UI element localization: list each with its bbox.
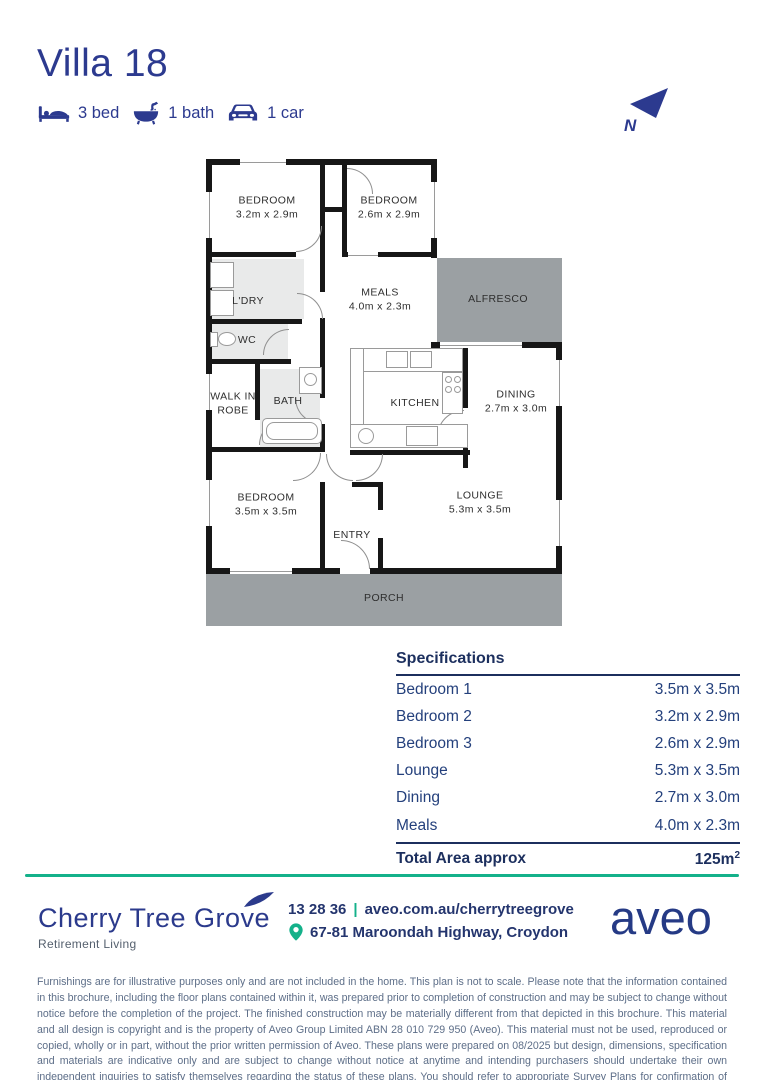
room-label-lounge: LOUNGE5.3m x 3.5m xyxy=(449,489,511,516)
contact-block: 13 28 36 | aveo.com.au/cherrytreegrove 6… xyxy=(288,901,574,942)
phone-number: 13 28 36 xyxy=(288,901,346,918)
community-logo: Cherry Tree Grove Retirement Living xyxy=(38,903,270,951)
specifications-heading: Specifications xyxy=(396,650,740,676)
room-label-bedroom-top-right: BEDROOM2.6m x 2.9m xyxy=(358,194,420,221)
sink-icon xyxy=(410,351,432,368)
car-count-label: 1 car xyxy=(267,104,304,123)
bed-icon xyxy=(38,102,70,124)
room-label-bath: BATH xyxy=(274,395,303,409)
room-label-walk-in-robe: WALK IN ROBE xyxy=(207,390,259,417)
bathtub-inner-icon xyxy=(266,422,318,440)
brochure-page: Villa 18 3 bed xyxy=(0,0,764,1080)
burner-icon xyxy=(454,386,461,393)
location-pin-icon xyxy=(288,922,304,942)
specifications-table: Specifications Bedroom 13.5m x 3.5m Bedr… xyxy=(396,650,740,869)
basin-icon xyxy=(304,373,317,386)
separator: | xyxy=(353,901,357,918)
room-label-alfresco: ALFRESCO xyxy=(468,293,528,307)
room-label-bedroom-bottom: BEDROOM3.5m x 3.5m xyxy=(235,491,297,518)
room-label-entry: ENTRY xyxy=(333,529,370,543)
room-label-wc: WC xyxy=(238,334,256,348)
community-tagline: Retirement Living xyxy=(38,937,270,951)
kitchen-bench-side-icon xyxy=(350,348,364,428)
table-row: Bedroom 13.5m x 3.5m xyxy=(396,676,740,703)
north-arrow-icon: N xyxy=(616,78,678,134)
toilet-icon xyxy=(218,332,236,346)
website-url: aveo.com.au/cherrytreegrove xyxy=(365,901,574,918)
page-title: Villa 18 xyxy=(37,42,168,86)
disclaimer-text: Furnishings are for illustrative purpose… xyxy=(37,975,727,1080)
room-label-meals: MEALS4.0m x 2.3m xyxy=(349,286,411,313)
toilet-cistern-icon xyxy=(210,332,218,347)
washer-icon xyxy=(210,262,234,288)
table-row: Bedroom 23.2m x 2.9m xyxy=(396,703,740,730)
address-text: 67-81 Maroondah Highway, Croydon xyxy=(310,924,568,941)
table-row: Lounge5.3m x 3.5m xyxy=(396,758,740,785)
room-label-laundry: L'DRY xyxy=(232,295,264,309)
bath-count-label: 1 bath xyxy=(168,104,214,123)
bed-feature: 3 bed xyxy=(38,102,119,124)
bed-count-label: 3 bed xyxy=(78,104,119,123)
room-label-dining: DINING2.7m x 3.0m xyxy=(485,388,547,415)
dishwasher-icon xyxy=(406,426,438,446)
feature-summary: 3 bed 1 bath xyxy=(38,100,304,126)
sink-icon xyxy=(386,351,408,368)
compass-label: N xyxy=(624,116,637,134)
footer-divider xyxy=(25,874,739,877)
table-row: Dining2.7m x 3.0m xyxy=(396,785,740,812)
aveo-logo: aveo xyxy=(610,890,712,945)
community-name: Cherry Tree Grove xyxy=(38,903,270,934)
car-feature: 1 car xyxy=(227,101,304,125)
car-icon xyxy=(227,101,259,125)
dryer-icon xyxy=(210,290,234,316)
bath-icon xyxy=(132,100,160,126)
room-label-kitchen: KITCHEN xyxy=(391,397,440,411)
burner-icon xyxy=(454,376,461,383)
table-row: Bedroom 32.6m x 2.9m xyxy=(396,730,740,757)
burner-icon xyxy=(445,376,452,383)
bath-feature: 1 bath xyxy=(132,100,214,126)
leaf-icon xyxy=(242,891,276,909)
room-label-bedroom-top-left: BEDROOM3.2m x 2.9m xyxy=(236,194,298,221)
floor-plan: BEDROOM3.2m x 2.9m BEDROOM2.6m x 2.9m L'… xyxy=(200,152,572,630)
table-row: Meals4.0m x 2.3m xyxy=(396,812,740,839)
kitchen-motif-icon xyxy=(358,428,374,444)
burner-icon xyxy=(445,386,452,393)
total-area-row: Total Area approx 125m2 xyxy=(396,842,740,869)
room-label-porch: PORCH xyxy=(364,592,404,606)
